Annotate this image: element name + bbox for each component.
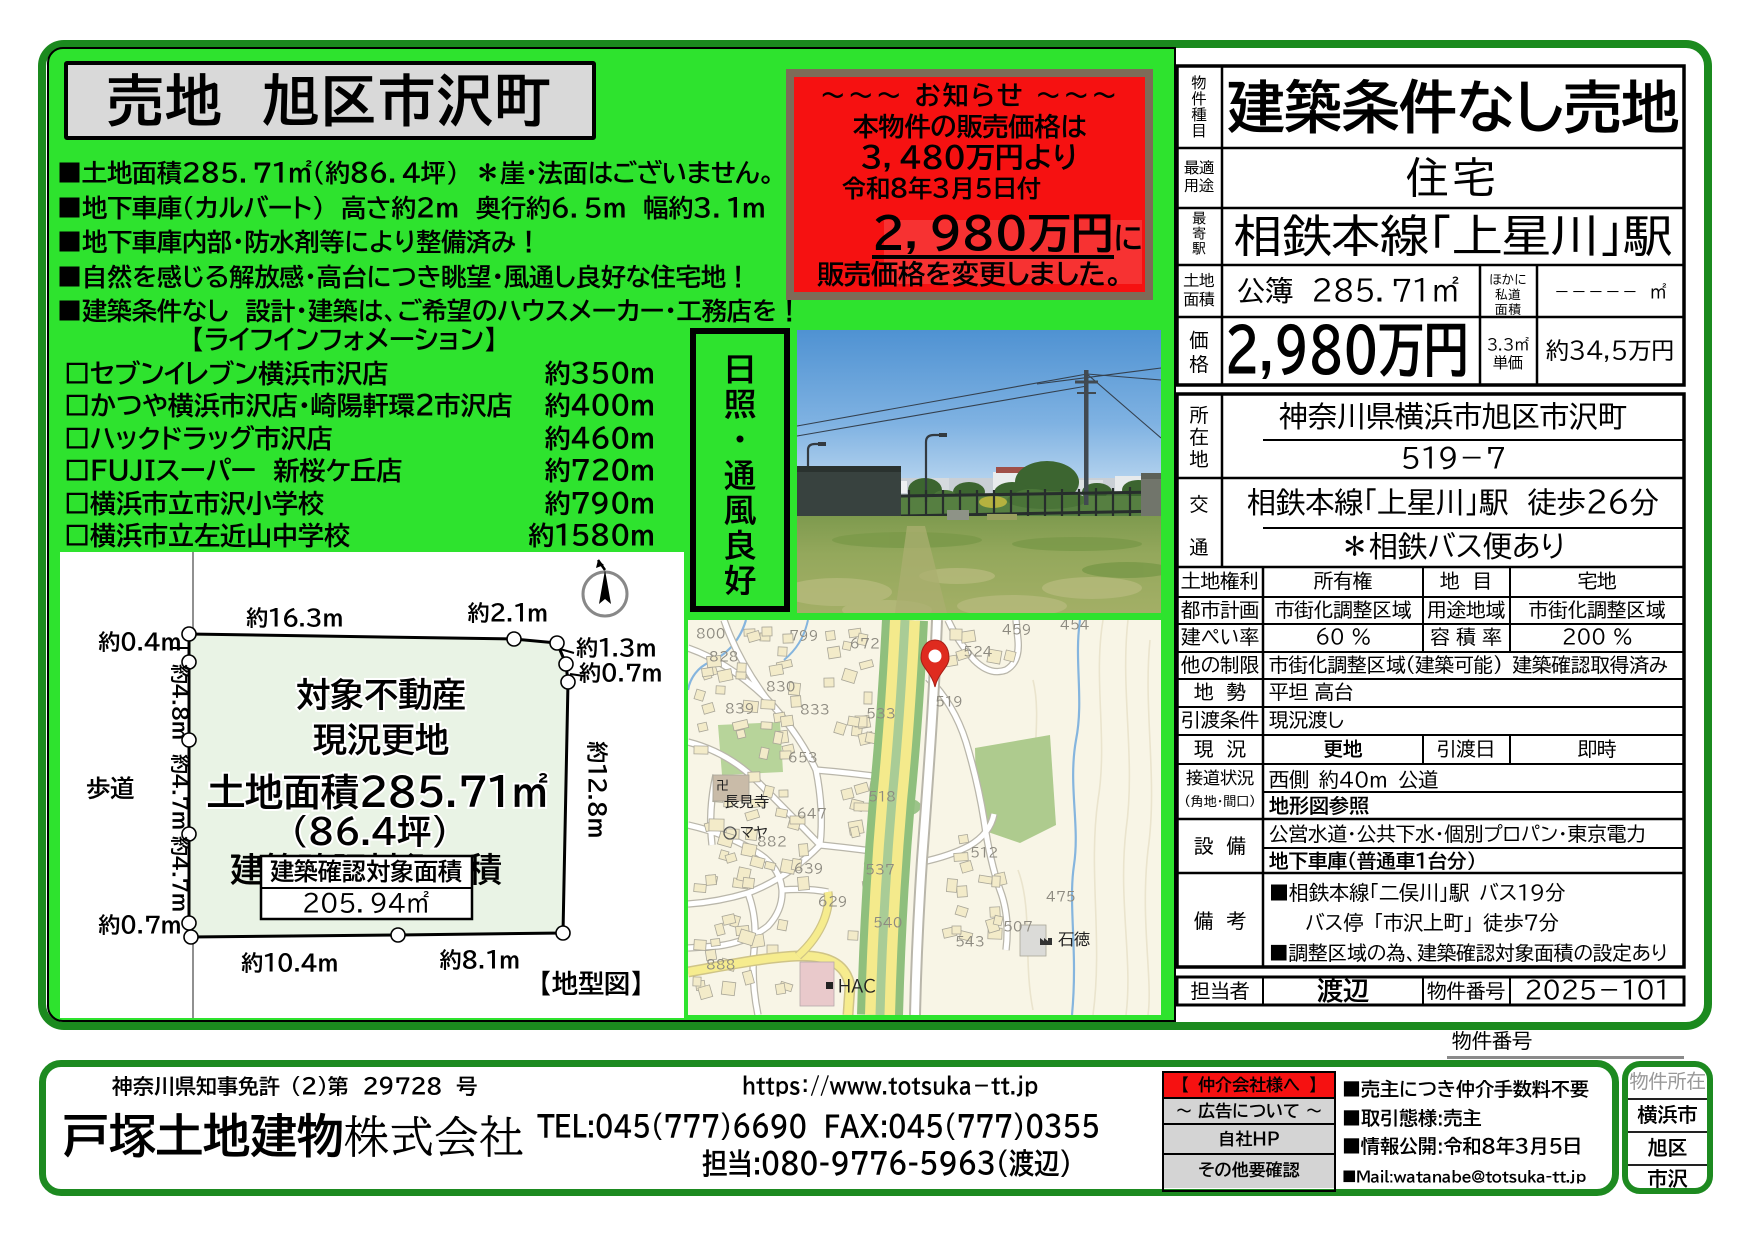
svg-text:地 勢: 地 勢 [1194,682,1246,702]
svg-text:公営水道・公共下水・個別プロパン・東京電力: 公営水道・公共下水・個別プロパン・東京電力 [1269,824,1646,844]
svg-text:市街化調整区域(建築可能) 建築確認取得済み: 市街化調整区域(建築可能) 建築確認取得済み [1269,655,1668,675]
svg-text:市街化調整区域: 市街化調整区域 [1529,600,1666,620]
svg-text:通: 通 [1190,538,1209,557]
svg-text:512: 512 [970,846,998,859]
svg-text:面積: 面積 [1184,291,1215,307]
svg-text:約0.4m: 約0.4m [98,631,182,653]
svg-text:3.3㎡: 3.3㎡ [1487,337,1529,352]
svg-text:長見寺: 長見寺 [724,794,769,809]
svg-text:在: 在 [1190,427,1209,447]
svg-text:寄: 寄 [1192,226,1206,240]
svg-text:約1.3m: 約1.3m [576,637,657,659]
svg-text:2025－101: 2025－101 [1524,978,1669,1002]
svg-text:駅: 駅 [1192,241,1206,255]
svg-text:面 積: 面 積 [1495,303,1521,316]
svg-text:他の制限: 他の制限 [1181,654,1260,675]
svg-text:(86.4坪): (86.4坪) [291,814,448,849]
svg-text:相鉄本線「上星川」駅: 相鉄本線「上星川」駅 [1234,214,1672,258]
svg-text:バス停 「市沢上町」 徒歩7分: バス停 「市沢上町」 徒歩7分 [1305,912,1559,933]
svg-text:540: 540 [873,916,903,929]
svg-text:524: 524 [963,645,993,658]
svg-text:888: 888 [706,958,736,971]
svg-text:537: 537 [865,863,895,876]
svg-text:【地型図】: 【地型図】 [539,970,643,997]
svg-text:市街化調整区域: 市街化調整区域 [1275,600,1412,620]
svg-text:799: 799 [789,629,819,642]
svg-text:地形図参照: 地形図参照 [1269,795,1369,816]
svg-text:物: 物 [1192,75,1207,90]
svg-text:所: 所 [1190,406,1209,425]
svg-text:現況渡し: 現況渡し [1269,710,1344,730]
svg-text:－－－－－ ㎡: －－－－－ ㎡ [1553,283,1666,301]
svg-text:現況更地: 現況更地 [313,722,449,757]
svg-text:約12.8m: 約12.8m [586,741,608,839]
svg-text:宅地: 宅地 [1578,571,1618,591]
svg-text:833: 833 [800,703,830,716]
svg-text:2,980万円: 2,980万円 [1225,320,1469,380]
svg-text:単価: 単価 [1493,354,1523,370]
svg-text:歩道: 歩道 [86,776,134,800]
svg-text:HAC: HAC [838,978,876,994]
svg-text:■相鉄本線「二俣川」駅 バス19分: ■相鉄本線「二俣川」駅 バス19分 [1269,882,1565,903]
svg-text:地下車庫（普通車1台分）: 地下車庫（普通車1台分） [1269,851,1476,871]
svg-text:種: 種 [1191,107,1207,122]
svg-text:件: 件 [1191,90,1207,106]
svg-text:目: 目 [1192,123,1207,138]
svg-text:629: 629 [818,894,848,908]
svg-text:価: 価 [1190,330,1209,350]
svg-text:建築条件なし売地: 建築条件なし売地 [1227,78,1679,135]
svg-text:約8.1m: 約8.1m [440,949,521,971]
svg-text:519: 519 [935,695,963,708]
svg-text:543: 543 [955,935,985,948]
svg-text:647: 647 [797,806,827,820]
svg-text:507: 507 [1003,920,1033,933]
svg-text:建築確認対象面積: 建築確認対象面積 [270,859,462,883]
svg-text:私 道: 私 道 [1495,288,1521,301]
svg-text:備 考: 備 考 [1194,911,1246,931]
svg-text:■調整区域の為、建築確認対象面積の設定あり: ■調整区域の為、建築確認対象面積の設定あり [1269,943,1668,963]
svg-text:神奈川県横浜市旭区市沢町: 神奈川県横浜市旭区市沢町 [1279,402,1627,431]
svg-text:土地権利: 土地権利 [1181,571,1259,591]
svg-text:(角地・間口): (角地・間口) [1184,794,1255,808]
svg-text:引渡日: 引渡日 [1437,739,1496,759]
svg-text:格: 格 [1190,354,1209,374]
svg-text:住宅: 住宅 [1406,156,1500,199]
svg-text:459: 459 [1002,623,1032,636]
svg-text:672: 672 [850,636,880,650]
svg-text:地 目: 地 目 [1440,571,1492,591]
svg-text:土地面積285.71㎡: 土地面積285.71㎡ [207,772,549,811]
svg-text:石徳: 石徳 [1058,931,1091,947]
svg-text:約4.7m: 約4.7m [170,836,191,912]
svg-text:639: 639 [794,861,824,875]
svg-text:容 積 率: 容 積 率 [1430,627,1502,647]
svg-text:最適: 最適 [1184,160,1215,175]
svg-text:所有権: 所有権 [1314,571,1373,591]
svg-text:約0.7m: 約0.7m [579,662,663,684]
svg-text:地: 地 [1190,450,1210,469]
svg-text:更地: 更地 [1324,739,1364,759]
svg-text:都市計画: 都市計画 [1180,600,1259,620]
svg-text:ほかに: ほかに [1490,273,1527,286]
svg-text:839: 839 [725,702,755,715]
svg-text:物件番号: 物件番号 [1427,981,1505,1001]
svg-text:相鉄本線「上星川」駅 徒歩26分: 相鉄本線「上星川」駅 徒歩26分 [1247,487,1658,517]
svg-text:接道状況: 接道状況 [1186,769,1254,787]
svg-text:西側 約40m 公道: 西側 約40m 公道 [1269,769,1438,790]
svg-text:518: 518 [868,790,896,803]
svg-text:引渡条件: 引渡条件 [1181,710,1259,730]
svg-text:最: 最 [1192,211,1206,225]
svg-text:約0.7m: 約0.7m [98,914,182,936]
svg-text:653: 653 [788,750,818,764]
svg-text:＊相鉄バス便あり: ＊相鉄バス便あり [1340,531,1566,561]
svg-text:519－7: 519－7 [1400,445,1506,472]
svg-text:２０５．９４㎡: ２０５．９４㎡ [302,891,430,915]
svg-text:用途: 用途 [1184,178,1215,193]
svg-text:交: 交 [1190,495,1209,514]
svg-text:平坦 高台: 平坦 高台 [1269,682,1354,702]
svg-text:200 ％: 200 ％ [1562,628,1632,647]
svg-text:設 備: 設 備 [1194,836,1246,856]
svg-text:担当者: 担当者 [1191,981,1250,1001]
svg-text:約4.7m: 約4.7m [170,754,191,830]
svg-text:454: 454 [1060,620,1090,631]
svg-text:土地: 土地 [1184,272,1215,288]
svg-text:現 況: 現 況 [1194,739,1246,759]
svg-text:475: 475 [1046,890,1076,903]
svg-text:830: 830 [766,680,796,693]
svg-text:公簿 285．71 ㎡: 公簿 285．71 ㎡ [1237,276,1460,305]
svg-text:800: 800 [696,627,726,640]
svg-text:533: 533 [866,707,896,720]
svg-text:828: 828 [709,650,739,663]
svg-text:約34,5万円: 約34,5万円 [1546,339,1675,362]
svg-text:建ぺい率: 建ぺい率 [1181,627,1259,647]
svg-text:即時: 即時 [1578,739,1617,759]
svg-text:マヤ: マヤ [740,825,768,840]
svg-text:用途地域: 用途地域 [1427,599,1506,620]
svg-text:約2.1m: 約2.1m [468,602,549,624]
svg-text:約4.8m: 約4.8m [170,664,191,740]
svg-text:卍: 卍 [716,779,729,792]
svg-text:渡辺: 渡辺 [1317,977,1369,1004]
svg-text:60 ％: 60 ％ [1315,627,1371,647]
svg-text:約10.4m: 約10.4m [241,952,339,974]
svg-text:対象不動産: 対象不動産 [296,677,466,712]
svg-text:約16.3m: 約16.3m [246,607,344,629]
